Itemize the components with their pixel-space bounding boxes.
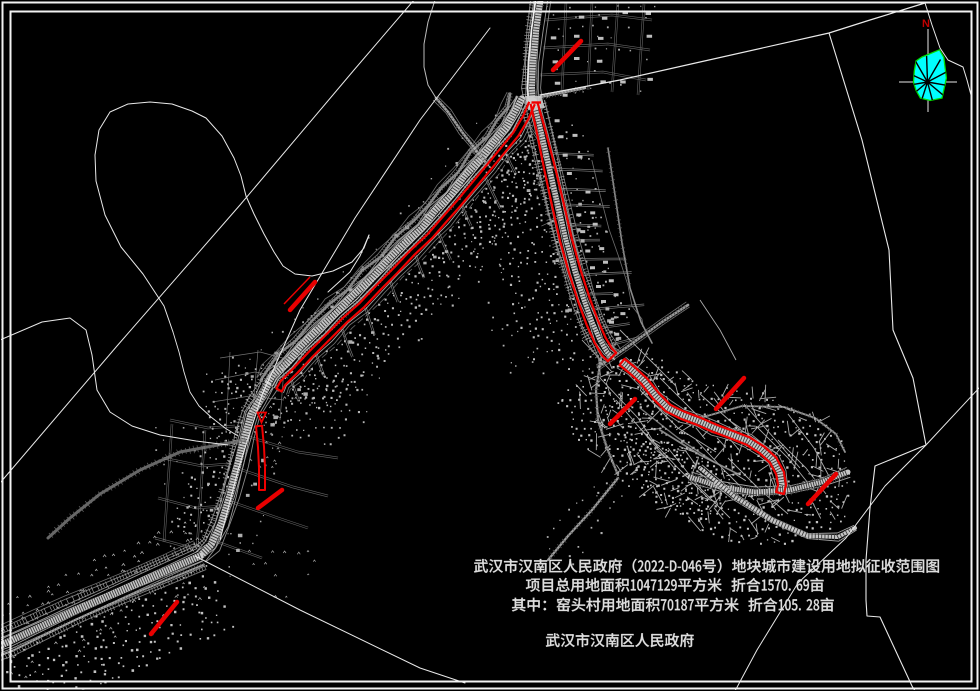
svg-text:N: N [922, 18, 930, 30]
